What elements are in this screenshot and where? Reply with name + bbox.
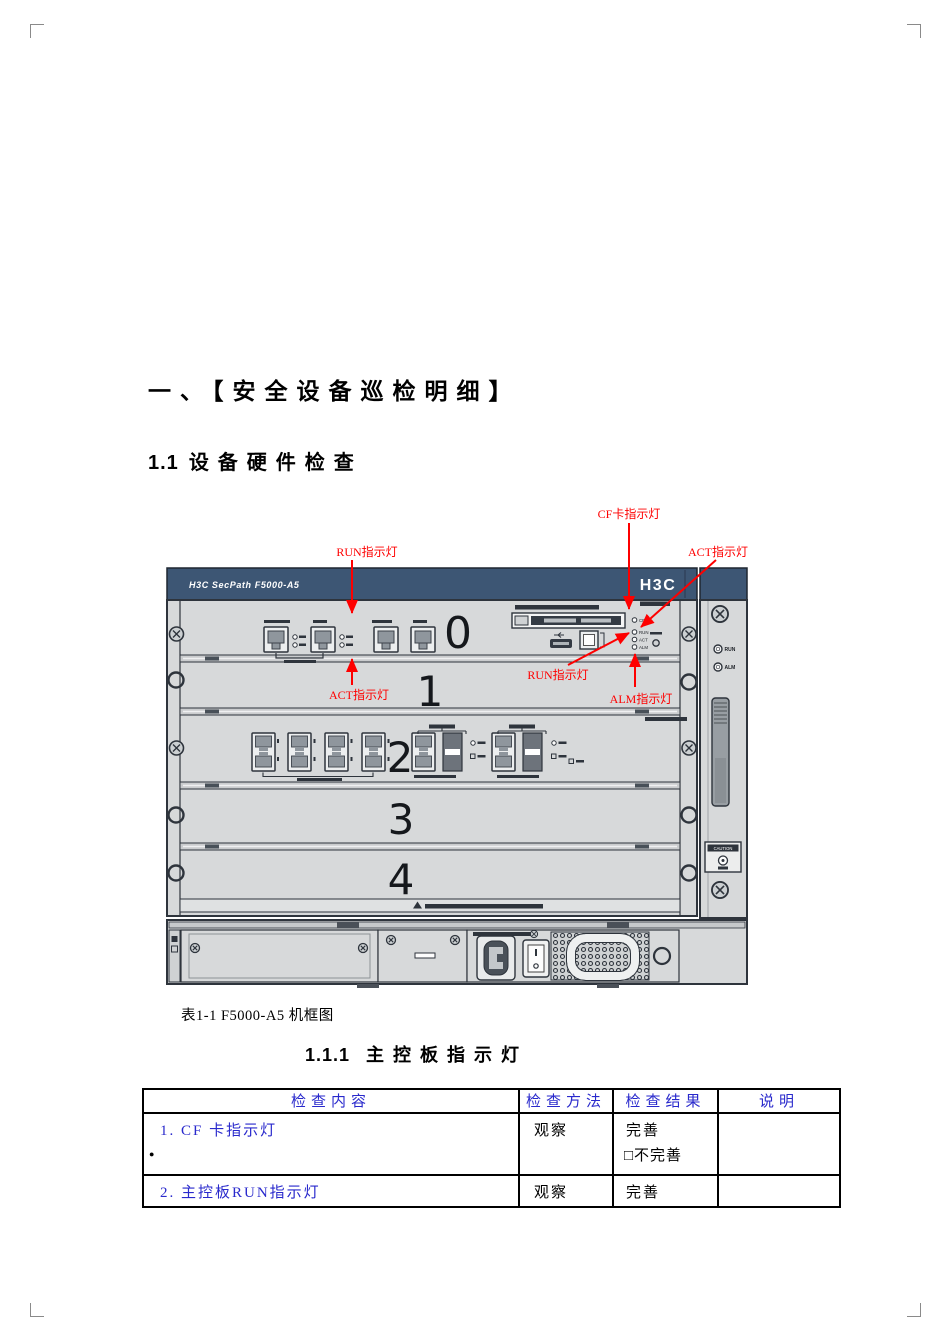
brand-bar-right <box>700 568 747 600</box>
check-item-2: 2. 主控板RUN指示灯 <box>144 1176 518 1202</box>
reset-button <box>653 640 659 646</box>
slot-number-2: 2 <box>387 733 414 782</box>
table-header-row: 检查内容 检查方法 检查结果 说明 <box>143 1089 840 1113</box>
table-row: 1. CF 卡指示灯 ● 观察 完善 □不完善 <box>143 1113 840 1175</box>
panel-run-led <box>714 645 722 653</box>
inspection-table: 检查内容 检查方法 检查结果 说明 1. CF 卡指示灯 ● 观察 完善 □不完… <box>142 1088 841 1208</box>
header-check-result: 检查结果 <box>613 1089 718 1113</box>
slot-number-1: 1 <box>417 667 444 716</box>
check-method-1: 观察 <box>520 1114 612 1140</box>
note-2 <box>719 1176 839 1181</box>
document-page: 一、【安全设备巡检明细】 1.1设备硬件检查 <box>0 0 950 1344</box>
slot-number-3: 3 <box>388 795 415 844</box>
section-heading: 1.1设备硬件检查 <box>148 446 363 475</box>
header-check-method: 检查方法 <box>519 1089 613 1113</box>
product-name-label: H3C SecPath F5000-A5 <box>189 580 300 590</box>
panel-run-led-label: RUN <box>725 647 736 653</box>
chassis-drawing: H3C SecPath F5000-A5 H3C <box>140 500 760 995</box>
panel-alm-led <box>714 663 722 671</box>
header-check-content: 检查内容 <box>143 1089 519 1113</box>
figure-caption: 表1-1 F5000-A5 机框图 <box>181 1004 334 1025</box>
cf-led-label: CF <box>639 618 645 623</box>
psu-blank-panel <box>181 930 378 982</box>
warning-strip <box>180 899 680 912</box>
check-item-1: 1. CF 卡指示灯 <box>144 1114 518 1140</box>
callout-act-led-bottom: ACT指示灯 <box>329 687 389 702</box>
header-note: 说明 <box>718 1089 840 1113</box>
bullet: ● <box>144 1140 518 1159</box>
margin-mark <box>30 24 44 38</box>
margin-mark <box>907 24 921 38</box>
table-row: 2. 主控板RUN指示灯 观察 完善 <box>143 1175 840 1207</box>
fan-grille <box>551 932 649 981</box>
caution-label: CAUTION <box>714 846 733 851</box>
panel-alm-led-label: ALM <box>725 665 736 671</box>
callout-run-led-mid: RUN指示灯 <box>527 667 588 682</box>
slot-number-4: 4 <box>388 855 415 904</box>
alm-led <box>632 645 637 650</box>
power-section-details <box>169 922 745 988</box>
subsection-number: 1.1.1 <box>305 1045 350 1065</box>
callout-act-led-top: ACT指示灯 <box>688 544 748 559</box>
check-method-2: 观察 <box>520 1176 612 1202</box>
act-led-label: ACT <box>639 637 648 642</box>
note-1 <box>719 1114 839 1119</box>
margin-mark <box>30 1303 44 1317</box>
callout-cf-card-led: CF卡指示灯 <box>598 506 661 521</box>
chassis-figure: H3C SecPath F5000-A5 H3C <box>140 500 760 995</box>
slot-rail <box>180 655 680 662</box>
ac-inlet <box>477 936 515 980</box>
alm-led-label: ALM <box>639 645 648 650</box>
section-title: 设备硬件检查 <box>189 452 363 474</box>
margin-mark <box>907 1303 921 1317</box>
subsection-heading: 1.1.1主控板指示灯 <box>305 1041 528 1067</box>
esd-jack: CAUTION <box>705 842 741 872</box>
slot-number-0: 0 <box>444 608 472 659</box>
run-led-label: RUN <box>639 630 649 635</box>
rj45-port <box>374 627 398 652</box>
result-ok-1: 完善 <box>614 1114 717 1140</box>
cf-led <box>632 618 637 623</box>
subsection-title: 主控板指示灯 <box>366 1045 528 1065</box>
callout-run-led-top: RUN指示灯 <box>336 544 397 559</box>
h3c-logo: H3C <box>640 577 677 594</box>
result-ok-2: 完善 <box>614 1176 717 1202</box>
power-switch <box>523 940 549 977</box>
slot-rail <box>180 782 680 789</box>
rj45-port <box>411 627 435 652</box>
chapter-heading: 一、【安全设备巡检明细】 <box>148 372 521 406</box>
section-number: 1.1 <box>148 452 179 474</box>
run-led <box>632 630 637 635</box>
slot-rail <box>180 843 680 850</box>
act-led <box>632 637 637 642</box>
callout-alm-led: ALM指示灯 <box>610 691 673 706</box>
chassis: H3C SecPath F5000-A5 H3C <box>167 568 747 988</box>
rj45-port <box>311 627 335 652</box>
result-not-ok-1: □不完善 <box>614 1140 717 1165</box>
rj45-port <box>264 627 288 652</box>
